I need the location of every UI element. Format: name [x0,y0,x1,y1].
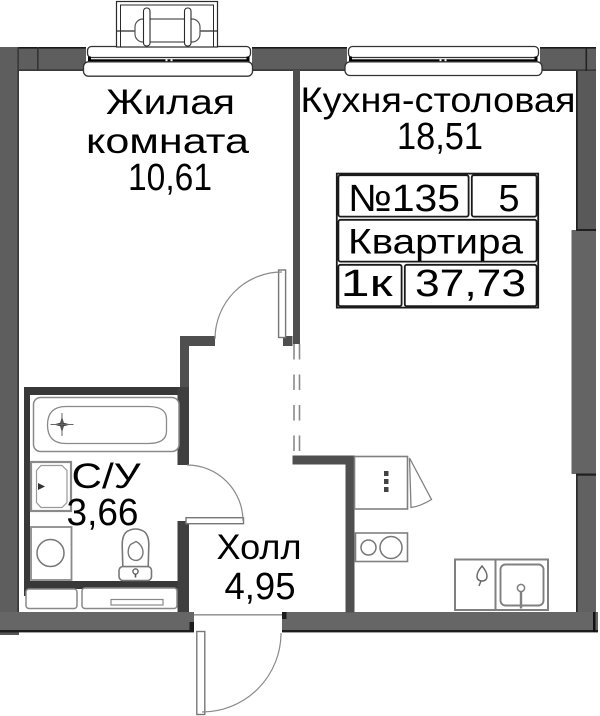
svg-text:4,95: 4,95 [225,566,296,608]
svg-text:37,73: 37,73 [415,263,526,305]
svg-text:комната: комната [86,122,250,161]
svg-text:18,51: 18,51 [397,116,483,158]
svg-text:Кухня-столовая: Кухня-столовая [301,81,576,120]
svg-text:3,66: 3,66 [67,492,139,534]
svg-text:1к: 1к [341,263,394,305]
svg-text:5: 5 [498,178,519,220]
svg-text:Жилая: Жилая [106,83,235,122]
svg-text:С/У: С/У [72,457,142,496]
svg-text:Квартира: Квартира [348,223,524,262]
svg-text:10,61: 10,61 [128,157,212,199]
svg-text:№135: №135 [348,178,460,220]
svg-text:Холл: Холл [217,528,302,567]
